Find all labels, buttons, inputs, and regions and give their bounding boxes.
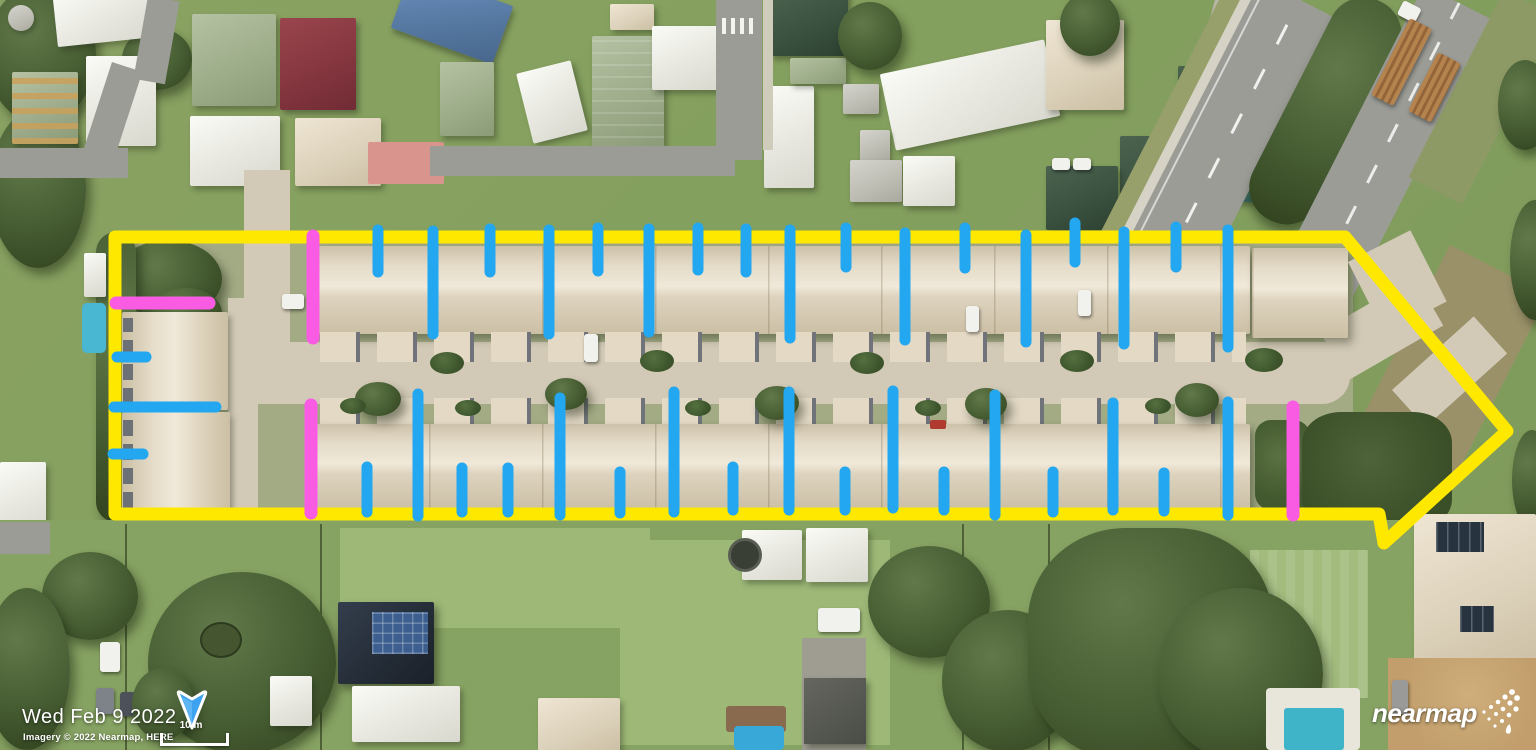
annotation-layer (0, 0, 1536, 750)
compass-north-arrow[interactable] (176, 688, 208, 730)
imagery-attribution: Imagery © 2022 Nearmap, HERE (23, 732, 173, 743)
map-canvas[interactable]: Wed Feb 9 2022 Imagery © 2022 Nearmap, H… (0, 0, 1536, 750)
nearmap-logo: nearmap (1372, 698, 1477, 729)
scale-bar (160, 733, 229, 746)
nearmap-logo-arrow-icon (1476, 686, 1528, 742)
capture-date-label: Wed Feb 9 2022 (22, 706, 177, 729)
